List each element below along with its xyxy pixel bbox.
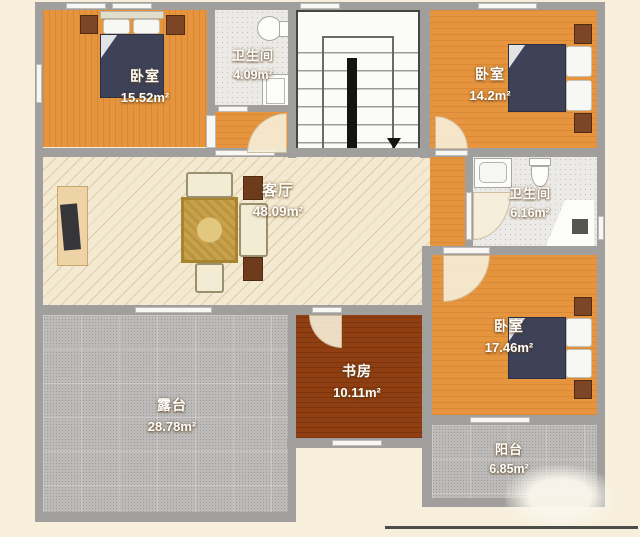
wall: [35, 148, 605, 157]
pillow-icon: [103, 19, 130, 34]
pillow-icon: [566, 46, 592, 77]
room-area: 28.78m²: [124, 417, 220, 437]
balcony-slider-window: [470, 417, 530, 423]
wall: [420, 2, 430, 158]
room-area: 14.2m²: [442, 86, 538, 106]
room-name: 卫生间: [482, 184, 578, 204]
floor-corridor-right: [430, 149, 468, 255]
stair-center-rail: [347, 58, 357, 148]
nightstand-icon: [574, 24, 592, 44]
room-area: 17.46m²: [461, 338, 557, 358]
door-leaf-bathroom-right: [466, 192, 472, 240]
door-leaf-bedroom-top-right: [435, 150, 468, 156]
room-name: 阳台: [461, 440, 557, 460]
room-name: 卧室: [442, 64, 538, 86]
side-table-icon: [243, 257, 263, 281]
window: [36, 64, 42, 103]
room-label-living-room: 客厅 48.09m²: [230, 179, 326, 223]
pillow-icon: [133, 19, 160, 34]
door-leaf-bathroom-top: [218, 106, 248, 112]
door-leaf-bedroom-top-left: [206, 115, 216, 148]
sofa-icon: [186, 172, 233, 198]
wall: [35, 512, 296, 522]
nightstand-icon: [166, 15, 185, 35]
sink-basin: [479, 162, 507, 183]
wall: [288, 305, 296, 522]
door-leaf-study: [312, 307, 342, 313]
window: [112, 3, 152, 9]
floor-plan: 卧室 15.52m² 卫生间 4.09m² 卧室 14.2m² 客厅 48.09…: [0, 0, 640, 537]
room-area: 6.16m²: [482, 204, 578, 223]
wall: [597, 2, 605, 507]
watermark-line: [385, 526, 638, 529]
watermark-smudge: [505, 465, 615, 530]
room-label-bathroom-right: 卫生间 6.16m²: [482, 184, 578, 224]
window: [598, 216, 604, 240]
room-name: 客厅: [230, 179, 326, 202]
bed-headboard: [100, 11, 164, 19]
room-label-bedroom-top-left: 卧室 15.52m²: [97, 66, 193, 108]
window: [300, 3, 340, 9]
nightstand-icon: [80, 15, 98, 34]
room-name: 卧室: [97, 66, 193, 88]
window: [66, 3, 106, 9]
room-area: 48.09m²: [230, 202, 326, 223]
chair-icon: [195, 263, 224, 293]
pillow-icon: [566, 349, 592, 378]
stair-flight-outline: [322, 36, 394, 148]
room-name: 卧室: [461, 316, 557, 338]
nightstand-icon: [574, 297, 592, 316]
room-area: 10.11m²: [309, 383, 405, 403]
terrace-slider-window: [135, 307, 212, 313]
room-label-bedroom-top-right: 卧室 14.2m²: [442, 64, 538, 106]
room-label-terrace: 露台 28.78m²: [124, 395, 220, 437]
staircase: [296, 10, 420, 150]
room-label-bedroom-bottom-right: 卧室 17.46m²: [461, 316, 557, 358]
wall: [35, 305, 430, 315]
pillow-icon: [566, 318, 592, 347]
door-leaf-bedroom-bottom-right: [443, 247, 490, 254]
room-name: 露台: [124, 395, 220, 417]
wall: [422, 246, 432, 507]
room-area: 4.09m²: [205, 66, 301, 85]
window: [332, 440, 382, 446]
nightstand-icon: [574, 113, 592, 133]
room-label-bathroom-top: 卫生间 4.09m²: [205, 46, 301, 86]
room-area: 15.52m²: [97, 88, 193, 108]
room-label-study: 书房 10.11m²: [309, 361, 405, 403]
room-name: 书房: [309, 361, 405, 383]
toilet-tank: [529, 158, 551, 166]
window: [478, 3, 537, 9]
pillow-icon: [566, 80, 592, 111]
nightstand-icon: [574, 380, 592, 399]
room-name: 卫生间: [205, 46, 301, 66]
